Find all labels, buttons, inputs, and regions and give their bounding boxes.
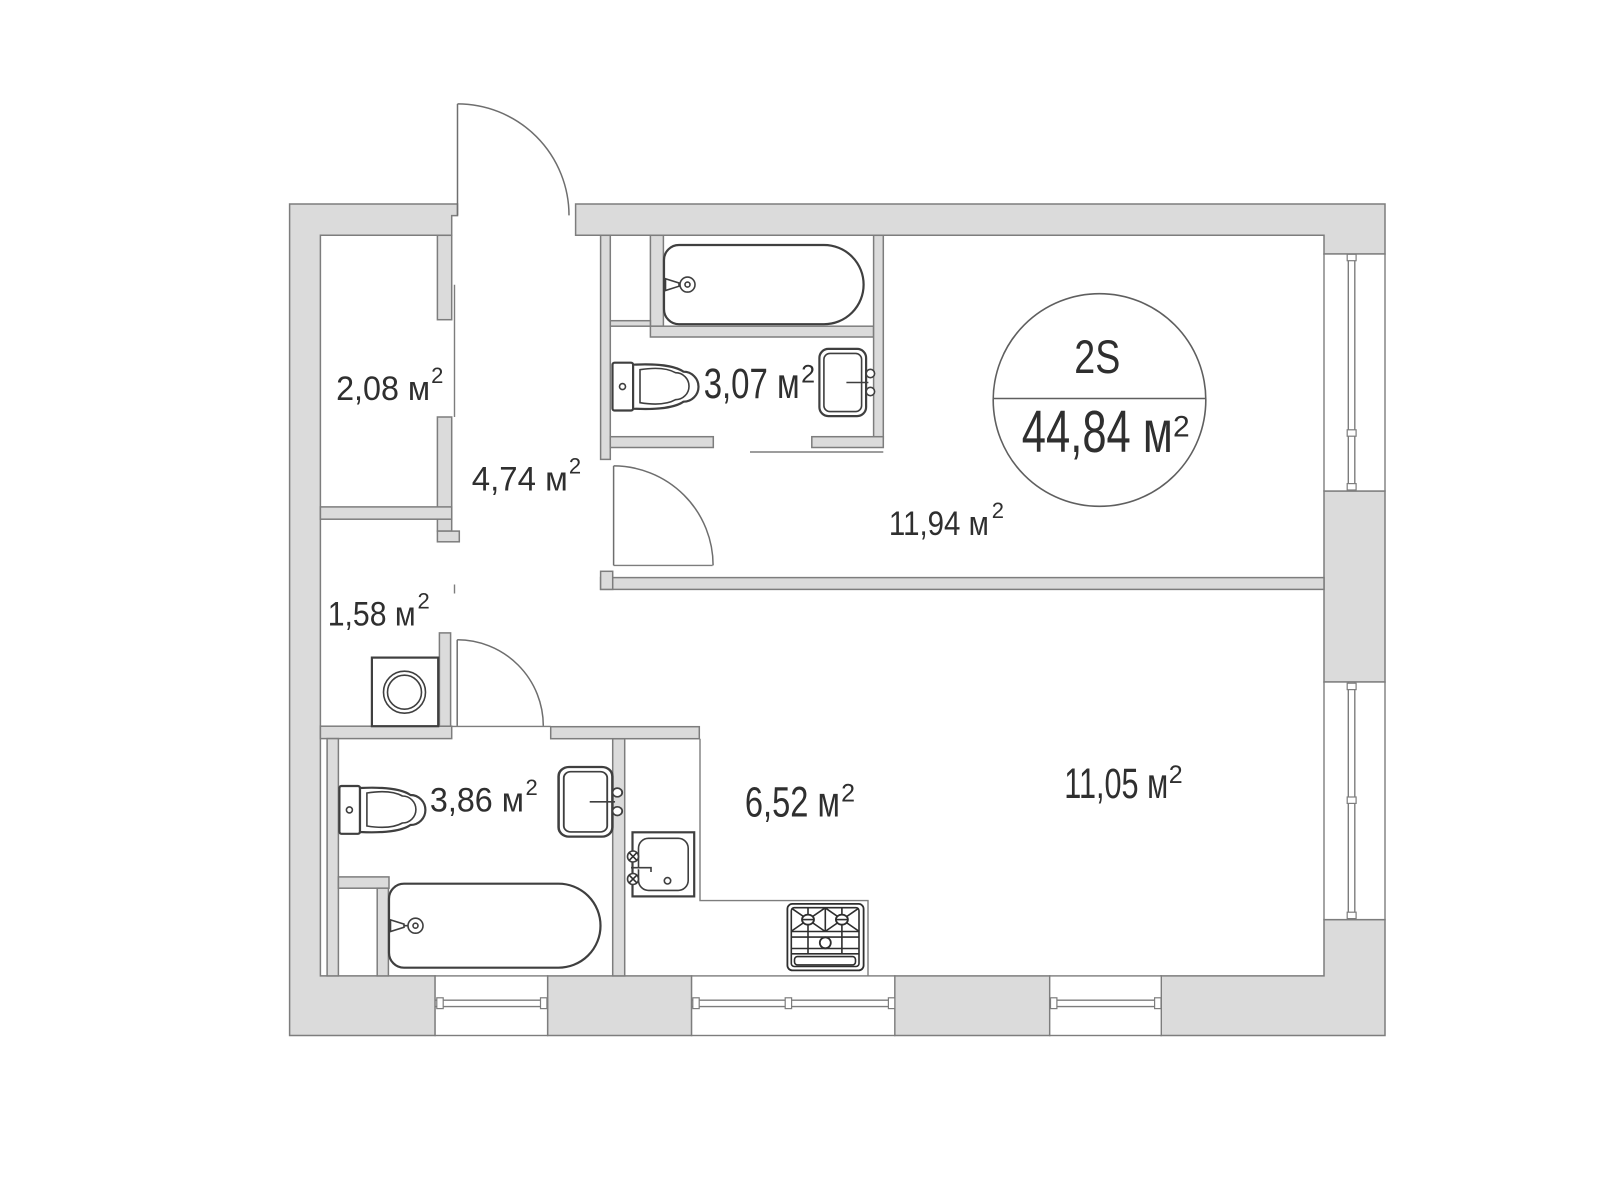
svg-text:2: 2: [431, 363, 443, 388]
svg-text:2,08 м: 2,08 м: [336, 370, 430, 408]
svg-text:11,05 м: 11,05 м: [1064, 760, 1168, 808]
svg-text:3,86 м: 3,86 м: [430, 782, 524, 820]
svg-text:11,94 м: 11,94 м: [889, 505, 989, 543]
svg-text:2: 2: [418, 589, 430, 614]
svg-text:44,84 м: 44,84 м: [1022, 399, 1173, 465]
svg-text:2: 2: [526, 775, 538, 800]
svg-text:6,52 м: 6,52 м: [745, 779, 840, 827]
svg-text:2: 2: [992, 498, 1004, 523]
svg-text:2: 2: [801, 361, 815, 389]
svg-text:3,07 м: 3,07 м: [704, 360, 800, 408]
svg-text:2: 2: [569, 454, 581, 479]
svg-text:1,58 м: 1,58 м: [328, 595, 416, 633]
svg-text:2: 2: [1173, 410, 1190, 443]
svg-text:4,74 м: 4,74 м: [472, 460, 568, 498]
svg-text:2S: 2S: [1074, 330, 1120, 383]
svg-text:2: 2: [1169, 761, 1183, 789]
svg-text:2: 2: [841, 780, 855, 808]
